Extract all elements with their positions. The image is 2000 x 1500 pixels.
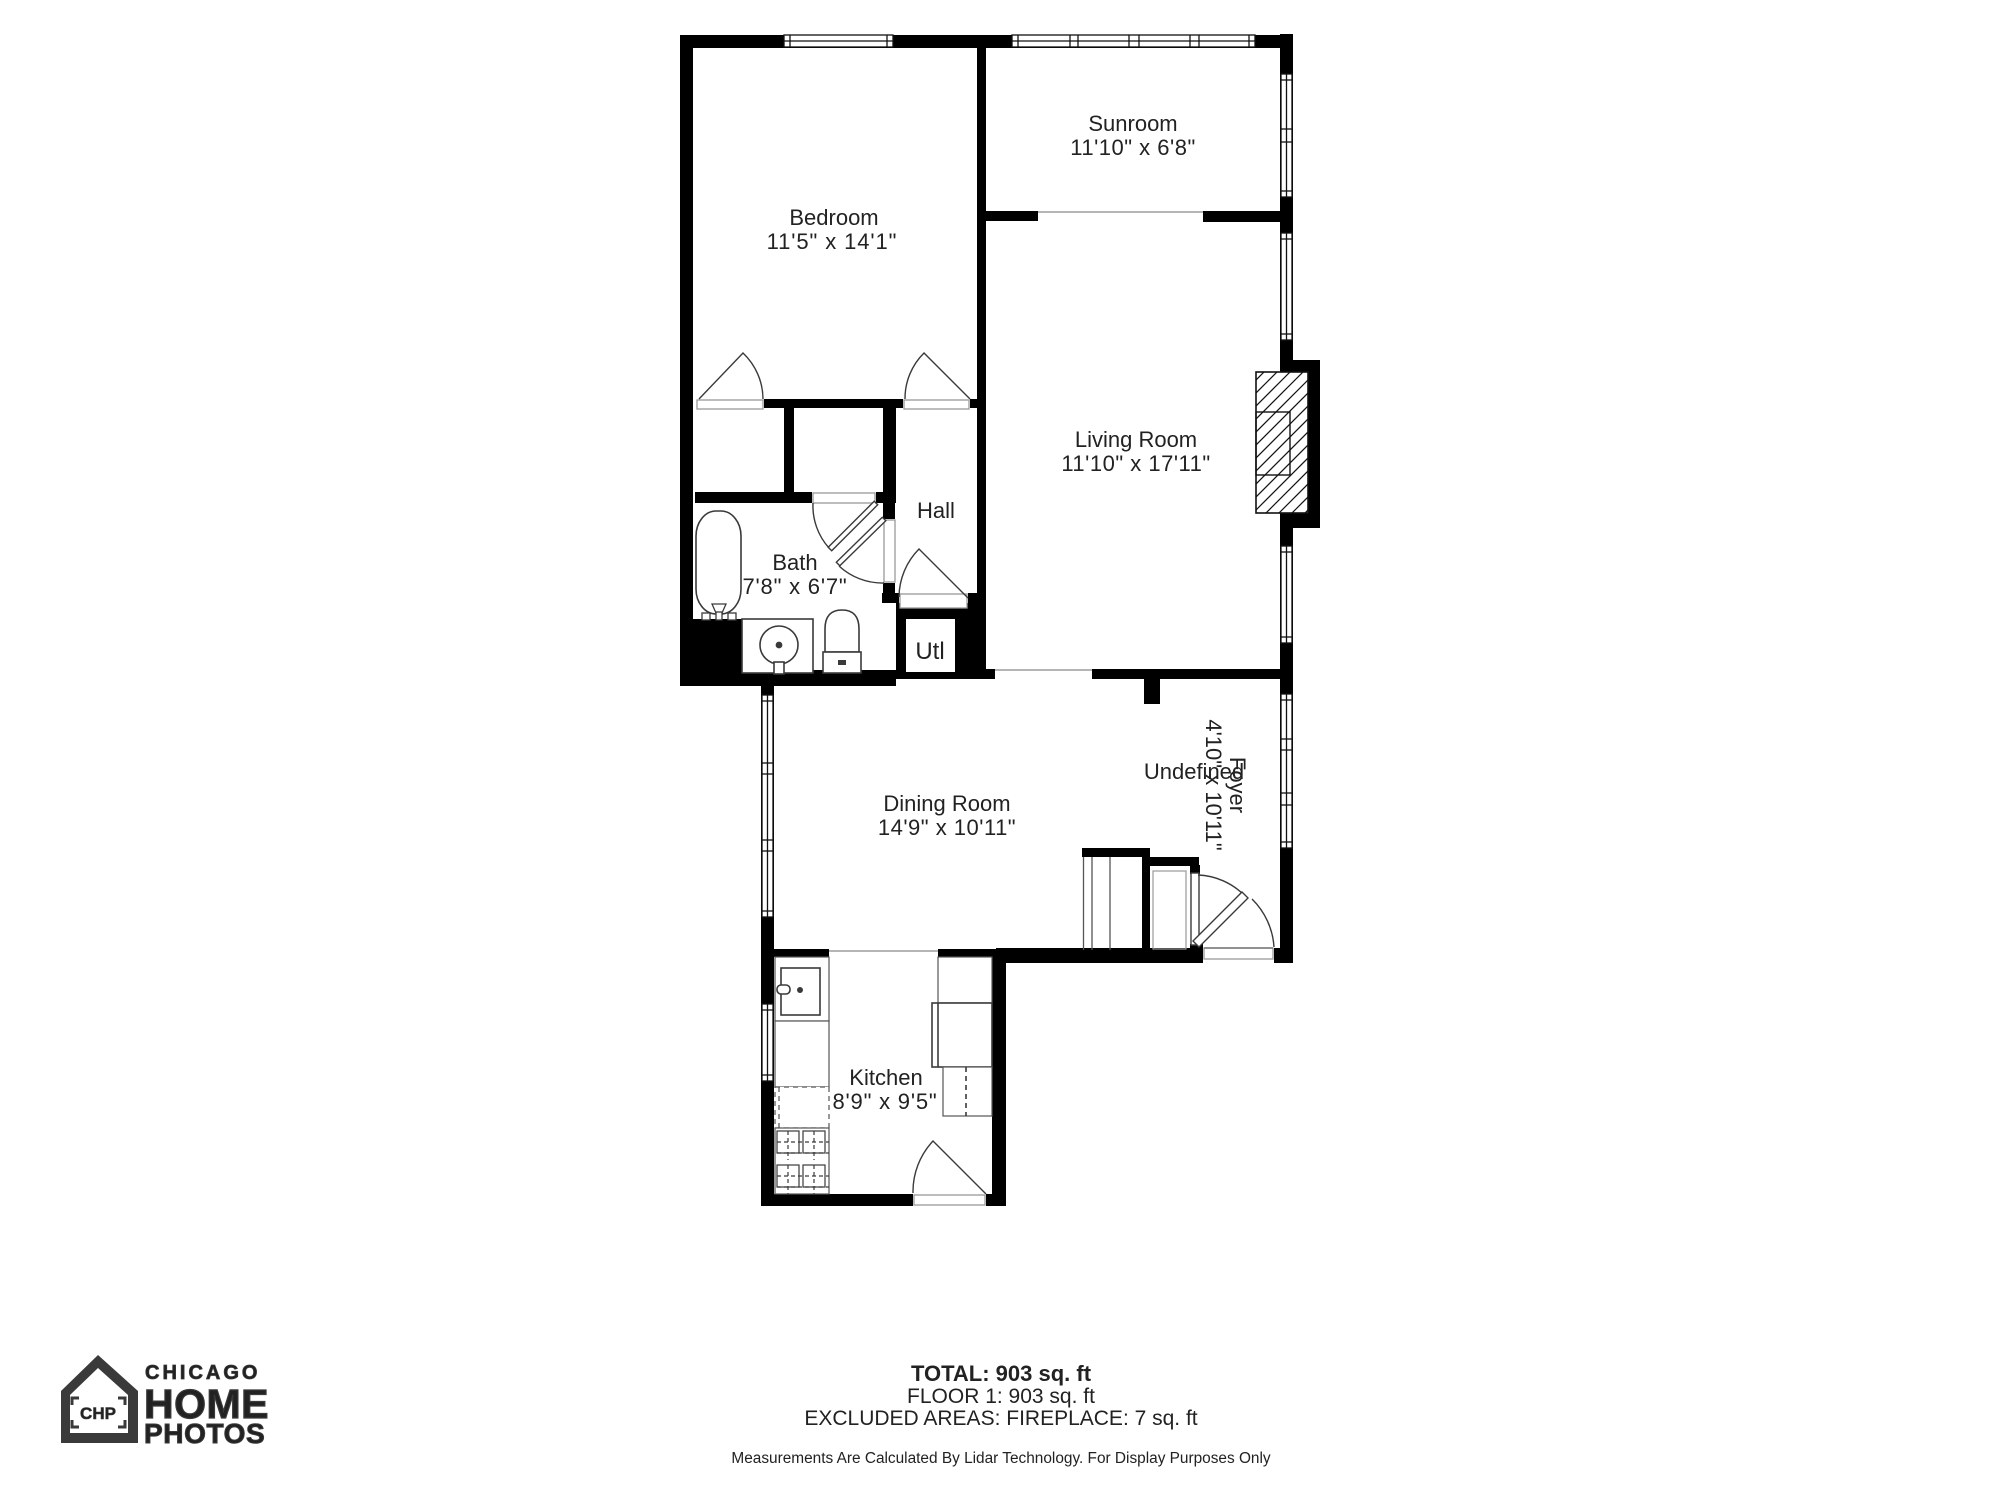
- svg-text:Utl: Utl: [915, 638, 944, 665]
- svg-text:Dining Room: Dining Room: [883, 791, 1010, 816]
- svg-text:FLOOR 1: 903 sq. ft: FLOOR 1: 903 sq. ft: [907, 1385, 1095, 1408]
- svg-text:PHOTOS: PHOTOS: [144, 1418, 265, 1449]
- svg-text:14'9" x 10'11": 14'9" x 10'11": [878, 815, 1016, 840]
- svg-text:Sunroom: Sunroom: [1088, 111, 1177, 136]
- svg-text:7'8" x 6'7": 7'8" x 6'7": [743, 574, 848, 599]
- svg-text:11'5" x 14'1": 11'5" x 14'1": [767, 229, 898, 254]
- svg-text:8'9" x 9'5": 8'9" x 9'5": [833, 1089, 938, 1114]
- svg-text:11'10" x 6'8": 11'10" x 6'8": [1070, 135, 1196, 160]
- svg-text:CHP: CHP: [80, 1404, 116, 1423]
- svg-text:Hall: Hall: [917, 498, 955, 523]
- svg-text:Bath: Bath: [772, 550, 817, 575]
- svg-text:EXCLUDED AREAS: FIREPLACE: 7 s: EXCLUDED AREAS: FIREPLACE: 7 sq. ft: [804, 1407, 1197, 1430]
- svg-text:TOTAL: 903 sq. ft: TOTAL: 903 sq. ft: [911, 1361, 1092, 1386]
- svg-text:Foyer: Foyer: [1225, 757, 1250, 813]
- svg-text:Measurements Are Calculated By: Measurements Are Calculated By Lidar Tec…: [731, 1450, 1271, 1467]
- svg-text:Bedroom: Bedroom: [789, 205, 878, 230]
- svg-text:Living Room: Living Room: [1075, 427, 1197, 452]
- svg-text:Kitchen: Kitchen: [849, 1065, 922, 1090]
- svg-text:11'10" x 17'11": 11'10" x 17'11": [1061, 451, 1210, 476]
- svg-text:4'10" x 10'11": 4'10" x 10'11": [1201, 719, 1226, 850]
